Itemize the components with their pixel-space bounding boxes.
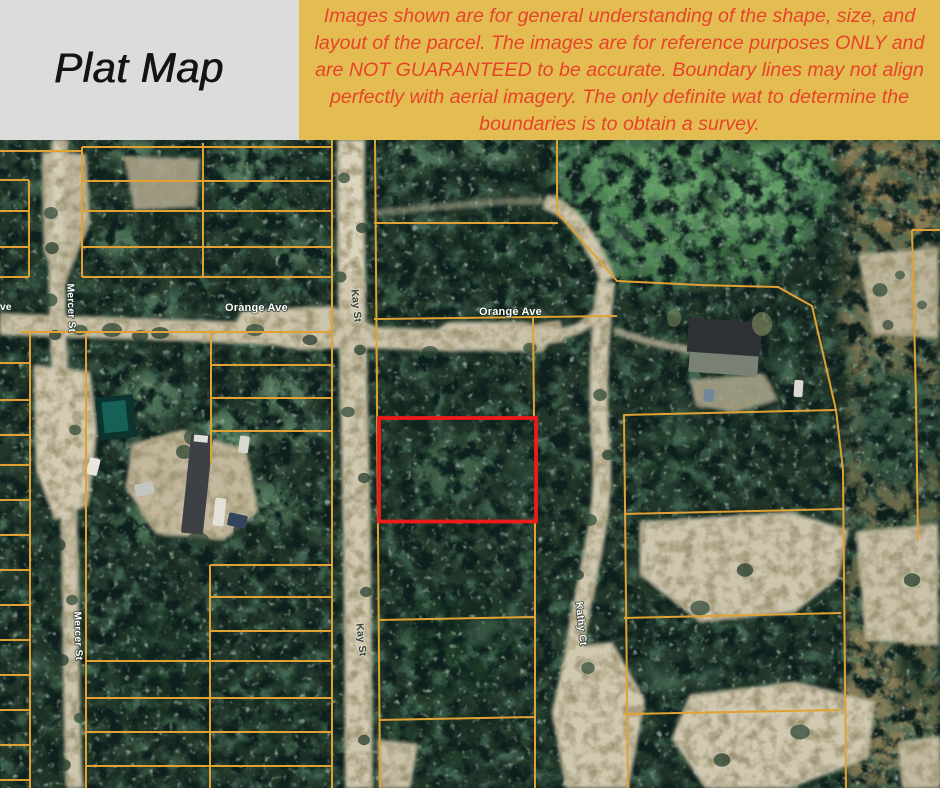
svg-text:ve: ve: [0, 302, 12, 313]
svg-text:Orange Ave: Orange Ave: [479, 306, 542, 318]
svg-text:Mercer St: Mercer St: [71, 611, 84, 660]
svg-text:Orange Ave: Orange Ave: [225, 302, 288, 314]
svg-text:Mercer St: Mercer St: [64, 283, 77, 332]
